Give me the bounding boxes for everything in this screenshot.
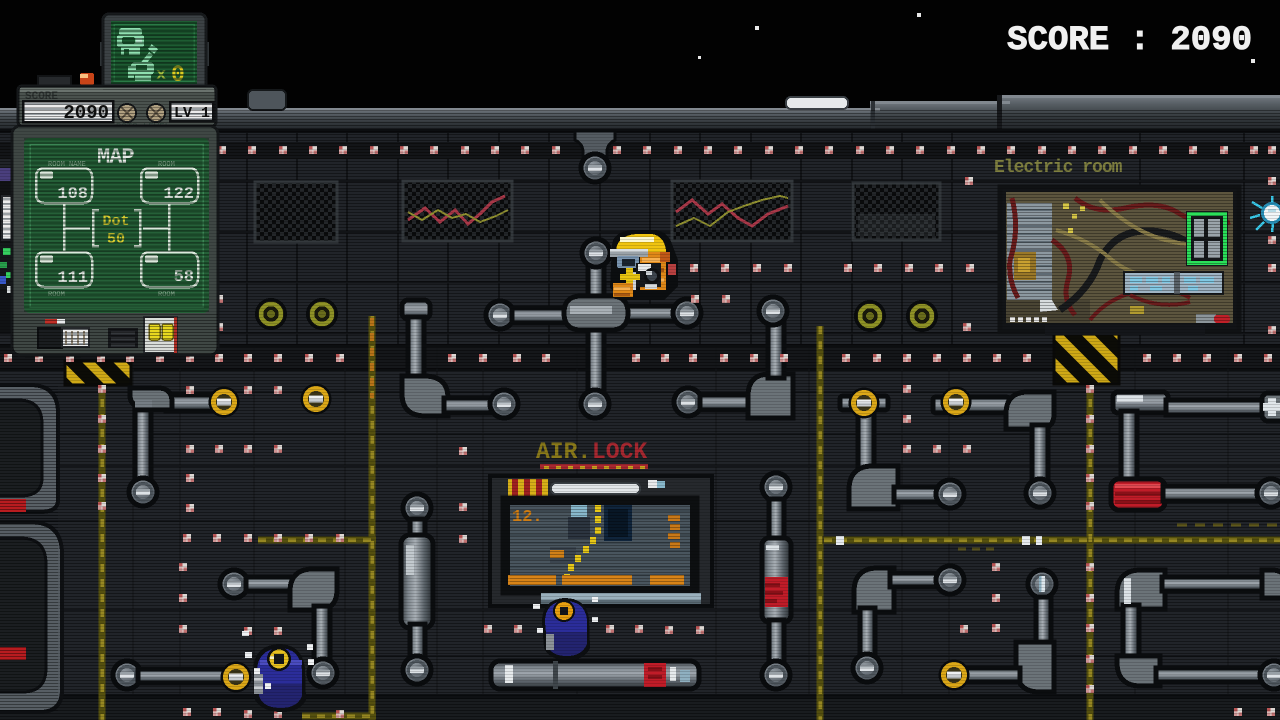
svg-text:SCORE : 2090: SCORE : 2090 [1007, 22, 1252, 60]
